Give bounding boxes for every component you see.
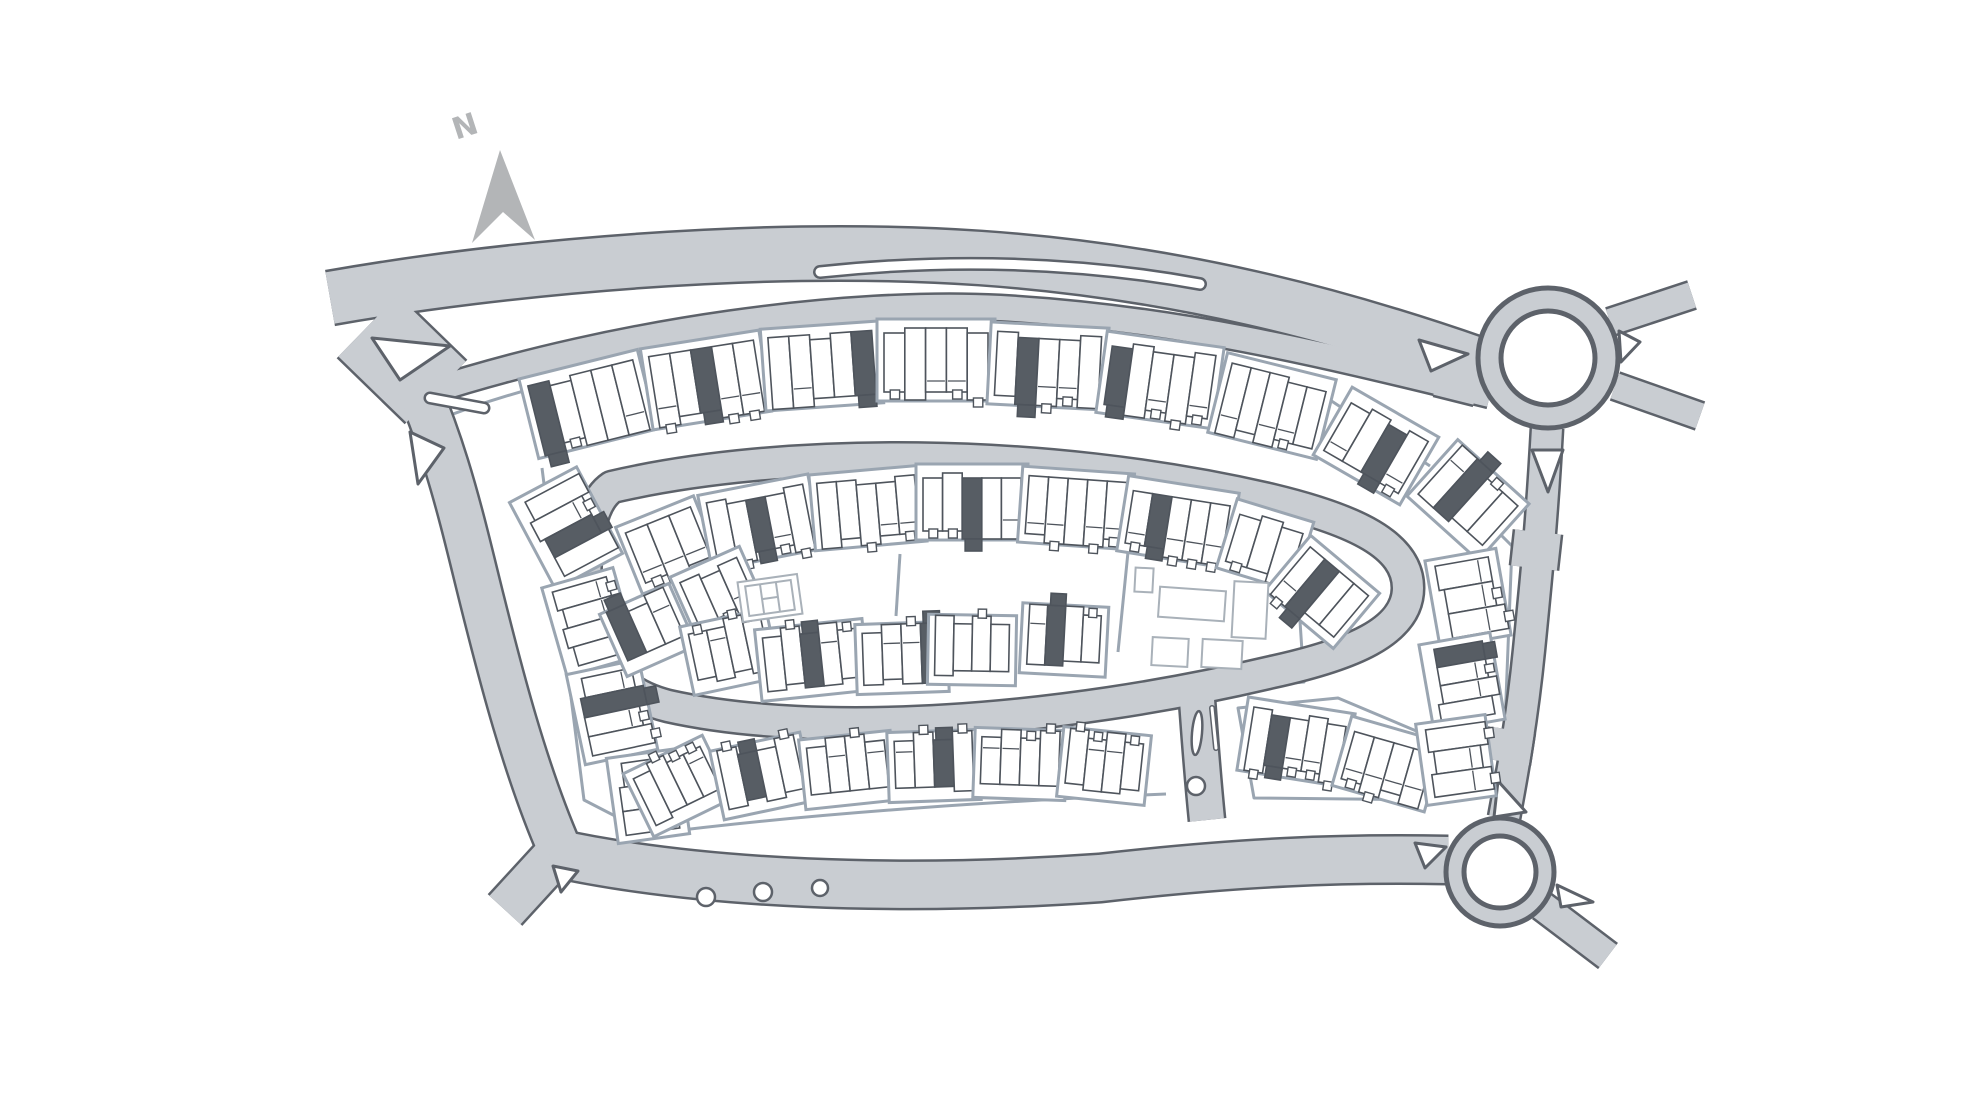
- house-porch: [1490, 772, 1500, 783]
- housing-block: [986, 322, 1109, 421]
- house-porch: [1167, 556, 1177, 566]
- house-porch: [1345, 778, 1356, 789]
- south-roundabout: [1446, 818, 1554, 926]
- house-unit: [972, 616, 991, 671]
- house-unit: [1120, 742, 1143, 791]
- highlighted-plot-extension[interactable]: [1051, 593, 1067, 606]
- house-unit: [953, 624, 972, 671]
- house-porch: [801, 548, 811, 559]
- highlighted-plot-extension[interactable]: [704, 410, 724, 425]
- house-unit: [894, 741, 915, 789]
- house-unit: [865, 740, 889, 789]
- highlighted-plot-extension[interactable]: [965, 539, 982, 551]
- housing-block: [1425, 547, 1517, 647]
- house-porch: [958, 724, 967, 733]
- house-porch: [1089, 608, 1098, 617]
- housing-block: [760, 321, 884, 414]
- siteplan-map: N: [0, 0, 1980, 1115]
- house-porch: [1192, 415, 1203, 425]
- house-porch: [606, 580, 617, 591]
- play-area-court: [738, 574, 803, 622]
- house-unit: [943, 473, 963, 531]
- house-porch: [1089, 544, 1098, 554]
- house-porch: [1170, 420, 1181, 430]
- house-porch: [666, 423, 677, 433]
- house-porch: [1484, 727, 1494, 738]
- frontage-notch: [812, 880, 828, 896]
- house-division-line: [896, 752, 912, 753]
- housing-block: [1095, 331, 1224, 435]
- east-exit: [1615, 386, 1700, 416]
- community-building: [1151, 637, 1188, 667]
- house-porch: [1287, 767, 1297, 777]
- house-porch: [1187, 559, 1197, 569]
- house-porch: [1278, 439, 1289, 450]
- house-porch: [1130, 542, 1140, 552]
- house-porch: [1049, 541, 1058, 551]
- house-unit: [884, 333, 905, 392]
- highlighted-plot-extension[interactable]: [1017, 404, 1035, 417]
- south-roundabout-se-island: [1557, 885, 1593, 907]
- house-porch: [1206, 562, 1216, 572]
- house-unit: [913, 732, 934, 788]
- house-porch: [948, 529, 957, 538]
- house-unit: [923, 478, 943, 531]
- house-unit: [946, 328, 967, 392]
- house-porch: [692, 625, 702, 636]
- house-unit: [1057, 340, 1081, 400]
- housing-block: [916, 464, 1028, 551]
- house-porch: [1492, 587, 1503, 598]
- house-division-line: [1003, 748, 1019, 749]
- house-porch: [1363, 792, 1374, 803]
- house-division-line: [1030, 623, 1045, 624]
- highlighted-plot-extension[interactable]: [644, 686, 659, 705]
- house-unit: [990, 624, 1009, 671]
- community-building: [1232, 581, 1269, 639]
- house-division-line: [883, 643, 899, 644]
- house-porch: [785, 620, 794, 630]
- south-roundabout-island: [1464, 836, 1536, 908]
- housing-block: [887, 723, 982, 802]
- house-porch: [1063, 397, 1073, 406]
- house-porch: [721, 741, 731, 752]
- house-porch: [953, 390, 962, 399]
- house-porch: [639, 710, 650, 720]
- housing-block: [1057, 721, 1152, 806]
- housing-block: [754, 613, 870, 702]
- stub-median-circle: [1187, 777, 1205, 795]
- house-porch: [919, 725, 928, 734]
- housing-block: [877, 319, 995, 407]
- house-division-line: [983, 748, 999, 749]
- northeast-exit: [1610, 295, 1692, 322]
- house-porch: [978, 609, 986, 618]
- east-merge-patch: [1440, 368, 1480, 378]
- house-unit: [881, 624, 902, 680]
- community-building: [1158, 587, 1226, 622]
- housing-block: [798, 724, 897, 809]
- house-porch: [850, 728, 860, 738]
- house-porch: [1504, 610, 1515, 621]
- house-porch: [906, 617, 915, 626]
- highlighted-plot-extension[interactable]: [1145, 547, 1163, 561]
- house-unit: [1000, 729, 1021, 785]
- house-unit: [1019, 738, 1040, 786]
- house-porch: [905, 531, 915, 541]
- house-porch: [778, 729, 788, 740]
- house-unit: [926, 328, 947, 392]
- frontage-notch: [697, 888, 715, 906]
- south-perimeter-road: [550, 852, 1448, 885]
- house-porch: [1150, 409, 1161, 419]
- highlighted-plot-extension[interactable]: [738, 739, 757, 754]
- frontage-notch: [754, 883, 772, 901]
- house-unit: [1039, 731, 1060, 787]
- siteplan-canvas: N: [0, 0, 1980, 1115]
- house-porch: [929, 529, 938, 538]
- north-roundabout: [1478, 288, 1618, 428]
- house-porch: [727, 609, 737, 620]
- highlighted-plot-extension[interactable]: [759, 549, 778, 564]
- community-building: [1134, 568, 1153, 593]
- highlighted-plot-extension[interactable]: [858, 394, 876, 407]
- house-porch: [1046, 724, 1055, 733]
- house-porch: [1041, 404, 1051, 413]
- housing-block: [1416, 714, 1503, 806]
- housing-blocks: [509, 319, 1536, 844]
- highlighted-plot-extension[interactable]: [801, 620, 818, 634]
- house-porch: [651, 728, 662, 738]
- house-porch: [750, 410, 761, 420]
- house-unit: [901, 623, 923, 684]
- connector-bulge-south: [1507, 730, 1512, 762]
- house-porch: [1484, 663, 1494, 673]
- parcel-line: [896, 554, 900, 616]
- house-unit: [982, 478, 1002, 539]
- highlighted-plot-unit[interactable]: [962, 478, 982, 539]
- housing-block: [1019, 592, 1109, 677]
- southeast-exit: [1542, 906, 1608, 956]
- house-porch: [1094, 732, 1103, 742]
- house-porch: [842, 622, 851, 632]
- housing-block: [640, 330, 772, 436]
- highlighted-plot-extension[interactable]: [1483, 642, 1498, 660]
- north-arrow-icon: N: [448, 106, 535, 243]
- house-unit: [862, 633, 883, 686]
- house-porch: [1076, 722, 1085, 732]
- house-unit: [967, 333, 988, 400]
- house-porch: [1027, 731, 1036, 740]
- north-roundabout-island: [1501, 311, 1595, 405]
- house-porch: [1130, 736, 1139, 746]
- house-porch: [570, 437, 582, 448]
- housing-block: [927, 608, 1016, 686]
- highlighted-plot-unit[interactable]: [851, 330, 876, 395]
- parcel-line: [1118, 552, 1128, 652]
- house-division-line: [903, 642, 919, 643]
- house-unit: [952, 731, 974, 792]
- highlighted-plot-extension[interactable]: [1105, 405, 1124, 419]
- housing-block: [973, 721, 1068, 800]
- house-unit: [980, 737, 1001, 785]
- house-unit: [905, 328, 926, 400]
- community-building: [1201, 639, 1242, 669]
- house-porch: [1305, 770, 1315, 780]
- north-arrow-shape: [472, 150, 535, 243]
- north-label: N: [448, 106, 483, 147]
- house-porch: [1248, 769, 1258, 779]
- connector-bulge-north: [1534, 532, 1538, 568]
- highlighted-plot-extension[interactable]: [1265, 766, 1283, 780]
- north-roundabout-east-island: [1619, 331, 1640, 362]
- house-porch: [781, 544, 791, 555]
- house-porch: [867, 542, 877, 552]
- highlighted-plot-extension[interactable]: [936, 727, 953, 740]
- house-porch: [1230, 561, 1242, 573]
- house-unit: [1081, 615, 1101, 663]
- house-porch: [729, 413, 740, 423]
- housing-block: [809, 465, 928, 556]
- house-porch: [890, 390, 899, 399]
- house-unit: [935, 615, 955, 675]
- house-porch: [973, 398, 982, 407]
- highlighted-plot-unit[interactable]: [933, 739, 954, 787]
